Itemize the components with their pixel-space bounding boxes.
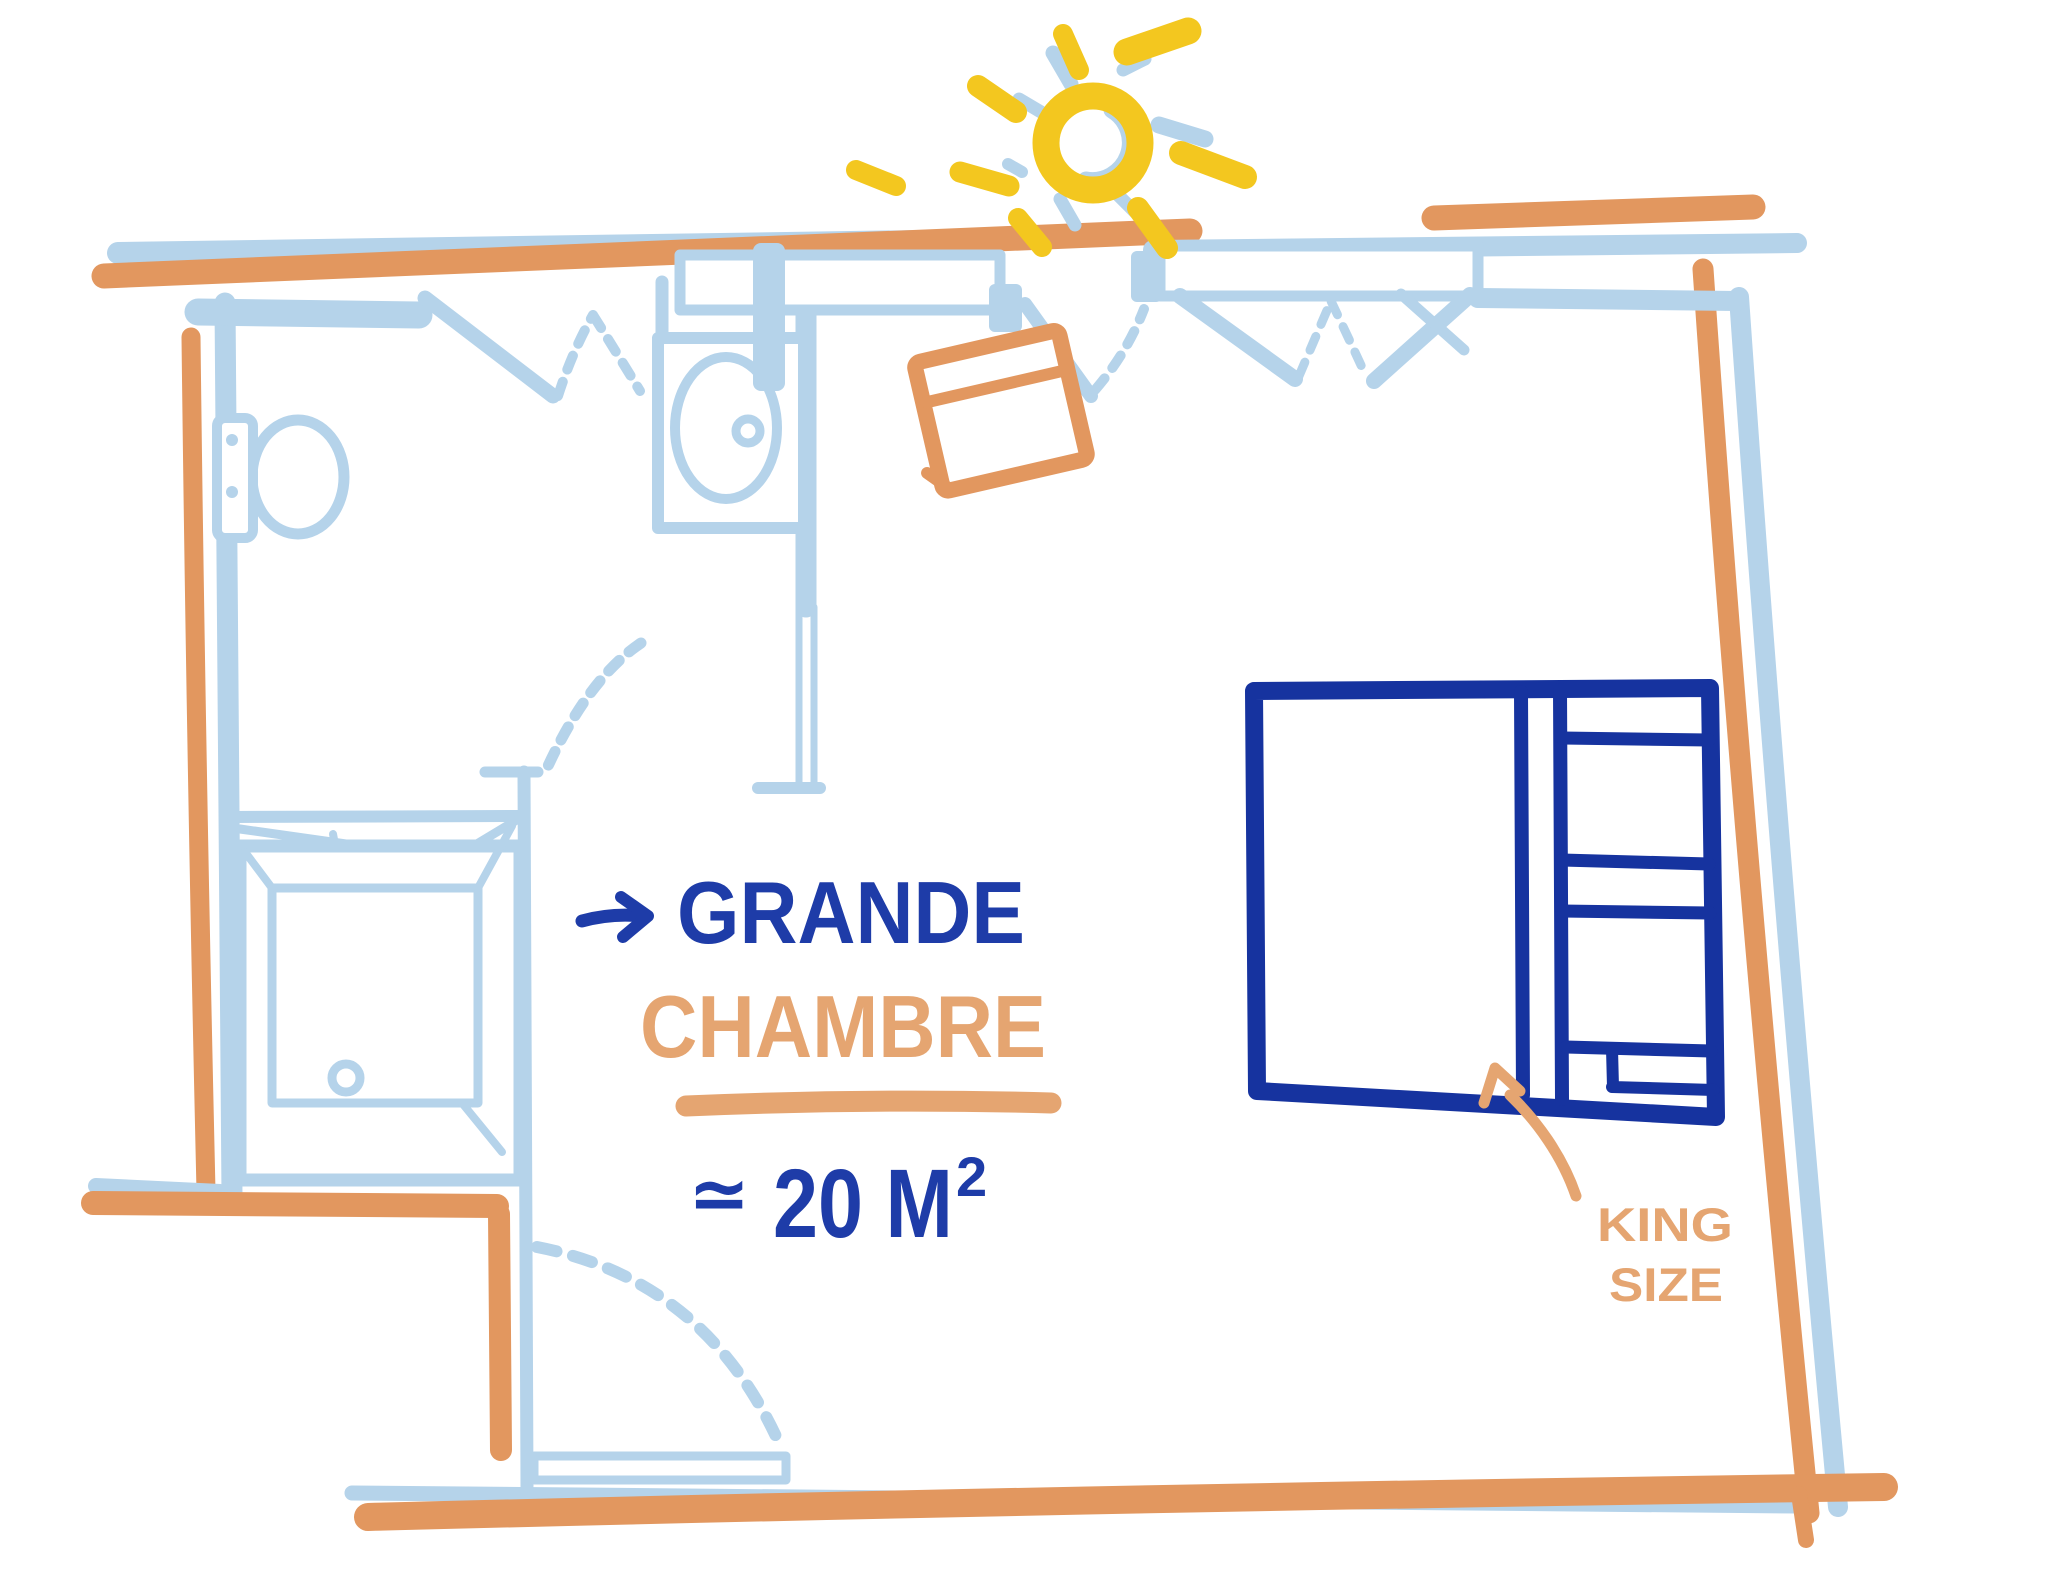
wall-corner-tail-orange [1799,1494,1806,1540]
bed-side-edge [1560,690,1562,1099]
room-name-line1: GRANDE [677,863,1025,962]
sun-icon [856,31,1245,248]
french-door-swing-icon [1299,301,1366,376]
entry-door-swing-icon [537,1247,780,1445]
divider-wall [233,816,520,817]
room-name-underline [686,1101,1051,1106]
french-door-left-leaf [1180,296,1295,379]
sun-ray [1181,153,1245,177]
shower-icon [240,826,520,1180]
bed-label-line2: SIZE [1609,1258,1723,1311]
floor-plan-canvas: KING SIZE GRANDE CHAMBRE ≃ 20 M 2 [0,0,2047,1590]
bed-divider [1562,860,1709,864]
entry-door-leaf [534,1456,786,1480]
sink-wall-thin-lines [799,607,814,784]
bed-divider [1566,1047,1711,1051]
toilet-icon [217,418,344,538]
room-name-line2: CHAMBRE [640,977,1046,1076]
window-icon [680,255,1000,310]
sun-ray-shadow [1159,125,1205,139]
bathroom-wall-bottom-orange [93,1203,497,1206]
french-door-frame [1160,246,1478,296]
bed-label-line1: KING [1597,1198,1733,1251]
window-jamb-thick [753,243,785,391]
bed-mattress-edge [1521,692,1523,1095]
room-arrow-shaft [582,915,641,921]
sun-ray-shadow [1060,199,1075,225]
door-swing-mid-icon [1095,309,1144,390]
toilet-bowl [252,420,344,534]
wall-band-to-corner [1478,298,1737,301]
sun-ray-shadow [1008,164,1022,172]
bathroom-door-swing-icon [548,643,641,766]
wall-top-right-orange [1434,207,1753,218]
area-value: 20 M [773,1149,953,1258]
bathroom-wall-top-blue [198,312,419,315]
step-wall-vertical-orange [499,1214,501,1450]
floor-plan-illustration: KING SIZE GRANDE CHAMBRE ≃ 20 M 2 [0,0,2047,1590]
wall-left-orange [191,337,206,1191]
partition-post [524,772,527,1486]
area-approx-symbol: ≃ [688,1151,750,1237]
area-superscript: 2 [956,1145,987,1208]
room-label: GRANDE CHAMBRE ≃ 20 M 2 [582,863,1051,1258]
door-leaf-bathroom [425,298,553,396]
sun-ray [960,172,1009,186]
king-size-bed-icon [1254,688,1716,1117]
toilet-bolt [226,486,238,498]
bed-divider [1562,911,1710,913]
chair-icon [902,330,1088,495]
bathroom-wall-bottom-blue [96,1186,220,1192]
door-swing-icon [558,315,640,396]
door-jamb-mid [989,284,1022,332]
sun-ray [978,86,1016,112]
toilet-bolt [226,434,238,446]
sun-ray [856,170,896,186]
chair-seat [914,330,1088,492]
bed-divider [1562,738,1709,740]
sun-ray [1127,31,1188,52]
